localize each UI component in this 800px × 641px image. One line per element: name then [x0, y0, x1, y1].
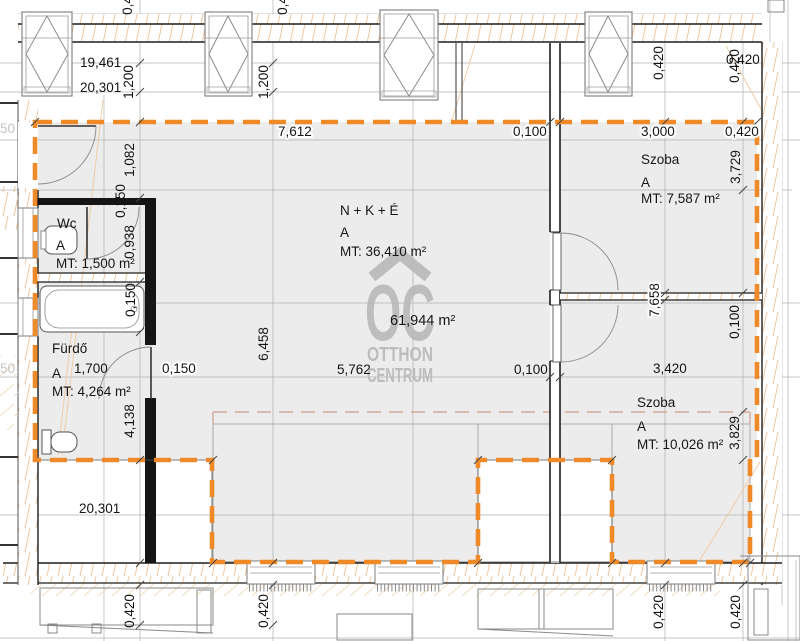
- dim-label: 0,420: [728, 595, 743, 629]
- window-icon: [585, 12, 632, 96]
- window-icon: [247, 561, 315, 588]
- room-area-szoba1: MT: 7,587 m²: [641, 191, 720, 206]
- total-area-label: 61,944 m²: [390, 313, 455, 329]
- watermark-line2: CENTRUM: [367, 365, 433, 387]
- dim-label: 0,420: [256, 594, 271, 628]
- room-area-furdo: MT: 4,264 m²: [52, 384, 131, 399]
- dim-label: 7,658: [647, 283, 662, 317]
- dim-label: 5,762: [337, 362, 371, 377]
- dim-label-cut: 0,420: [120, 0, 135, 15]
- dim-label-cut: 50: [0, 121, 15, 136]
- window-icon: [22, 12, 72, 96]
- dim-label: 0,100: [513, 124, 547, 139]
- toilet-icon: [42, 430, 77, 454]
- room-zone-living: A: [340, 225, 349, 240]
- dim-label: 0,420: [725, 124, 759, 139]
- dim-label: 0,420: [651, 46, 666, 80]
- dim-label: 1,082: [122, 143, 137, 177]
- dim-label: 0,100: [727, 305, 742, 339]
- dim-label: 1,700: [74, 361, 108, 376]
- left-outside-hatch: [0, 186, 18, 230]
- dim-label-cut: 0,420: [275, 0, 290, 15]
- window-icon: [205, 12, 252, 96]
- dim-label: 20,301: [79, 501, 120, 516]
- room-zone-wc: A: [56, 238, 65, 253]
- dim-label: 0,150: [162, 361, 196, 376]
- dim-label: 0,150: [123, 283, 138, 317]
- dim-label: 3,000: [641, 124, 675, 139]
- dim-label: 7,612: [278, 124, 312, 139]
- room-zone-szoba1: A: [641, 175, 650, 190]
- dim-label: 3,729: [728, 150, 743, 184]
- dim-label-cut: 50: [0, 361, 15, 376]
- dim-label: 1,200: [121, 65, 136, 99]
- window-icon: [380, 10, 438, 100]
- dim-label: 0,150: [113, 184, 128, 218]
- dim-label: 20,301: [80, 80, 121, 95]
- room-zone-furdo: A: [52, 366, 61, 381]
- room-name-szoba1: Szoba: [641, 152, 680, 167]
- dim-label: 0,420: [727, 49, 742, 83]
- room-area-living: MT: 36,410 m²: [340, 244, 427, 259]
- dim-label: 1,200: [256, 65, 271, 99]
- room-name-living: N + K + É: [340, 203, 399, 218]
- floor-plan: OC OTTHON CENTRUM Wc A MT: 1,500 m² Fürd…: [0, 0, 800, 641]
- dim-label: 4,138: [122, 404, 137, 438]
- room-name-furdo: Fürdő: [52, 341, 87, 356]
- dim-label: 0,420: [122, 594, 137, 628]
- room-name-wc: Wc: [57, 216, 77, 231]
- dim-label: 0,100: [514, 362, 548, 377]
- dim-label: 3,420: [653, 361, 687, 376]
- window-icon: [375, 561, 443, 588]
- dim-label: 6,458: [256, 327, 271, 361]
- room-zone-szoba2: A: [637, 419, 646, 434]
- room-name-szoba2: Szoba: [637, 395, 676, 410]
- dim-label: 19,461: [80, 55, 121, 70]
- watermark-line1: OTTHON: [367, 344, 433, 366]
- floorplan-screenshot: OC OTTHON CENTRUM Wc A MT: 1,500 m² Fürd…: [0, 0, 800, 641]
- dim-label: 3,829: [727, 416, 742, 450]
- room-area-szoba2: MT: 10,026 m²: [637, 437, 724, 452]
- dim-label: 0,938: [122, 225, 137, 259]
- window-icon: [647, 561, 715, 588]
- dim-label: 0,420: [651, 595, 666, 629]
